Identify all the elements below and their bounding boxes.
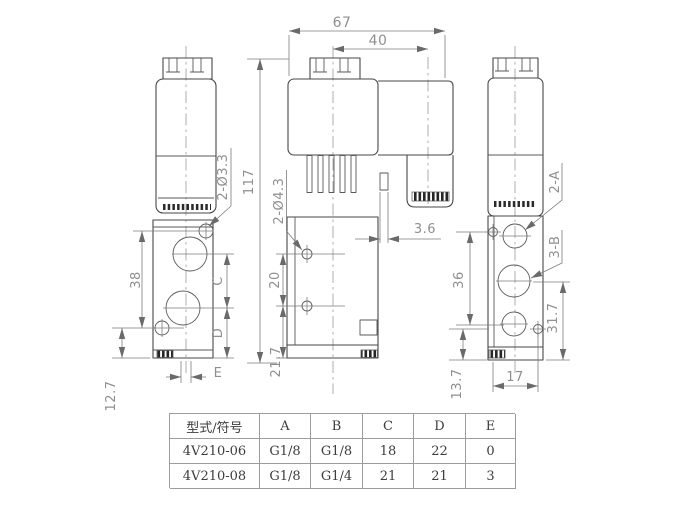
front-view	[287, 46, 453, 394]
dim-side-hole-pitch: 38	[129, 271, 144, 289]
left-side-view	[153, 46, 216, 376]
dim-right-width: 17	[506, 370, 524, 385]
dim-front-hole-pitch: 20	[268, 271, 283, 289]
label-holes-front: 2-Ø4.3	[272, 178, 287, 225]
table-cell-model: 4V210-08	[170, 464, 260, 489]
dim-right-hole-pitch: 36	[452, 271, 467, 289]
valve-dimension-drawing: 38 12.7 C D E 2-Ø3.3	[0, 0, 693, 511]
table-cell: 0	[466, 439, 516, 464]
dim-side-port-d: D	[211, 328, 226, 339]
table-cell: 18	[363, 439, 414, 464]
dim-side-bottom: 12.7	[104, 381, 119, 412]
table-cell: 22	[414, 439, 466, 464]
table-cell: G1/8	[260, 439, 311, 464]
dim-overall-height: 117	[242, 169, 257, 195]
spec-table: 型式/符号 A B C D E 4V210-06 G1/8 G1/8 18 22…	[169, 413, 515, 488]
dim-side-e: E	[214, 366, 223, 381]
table-cell: 21	[363, 464, 414, 489]
table-cell: G1/8	[311, 439, 363, 464]
dim-overall-width: 67	[333, 15, 352, 31]
dim-right-port-height: 31.7	[546, 303, 561, 334]
table-cell: G1/8	[260, 464, 311, 489]
table-header-e: E	[466, 414, 516, 439]
dim-side-port-c: C	[211, 276, 226, 286]
label-ports-a: 2-A	[548, 170, 563, 193]
label-holes-side: 2-Ø3.3	[216, 154, 231, 201]
table-cell: G1/4	[311, 464, 363, 489]
label-ports-b: 3-B	[548, 236, 563, 259]
right-side-view	[485, 46, 546, 376]
left-view-dimensions: 38 12.7 C D E 2-Ø3.3	[104, 148, 234, 411]
table-cell-model: 4V210-06	[170, 439, 260, 464]
table-header-a: A	[260, 414, 311, 439]
dim-pin-pitch: 40	[369, 33, 388, 49]
table-header-model: 型式/符号	[170, 414, 260, 439]
dim-tab-offset: 3.6	[414, 222, 436, 237]
table-header-d: D	[414, 414, 466, 439]
table-cell: 3	[466, 464, 516, 489]
table-header-c: C	[363, 414, 414, 439]
dim-right-bottom: 13.7	[450, 369, 465, 400]
dim-front-bottom: 21.7	[269, 347, 284, 378]
table-header-b: B	[311, 414, 363, 439]
table-cell: 21	[414, 464, 466, 489]
